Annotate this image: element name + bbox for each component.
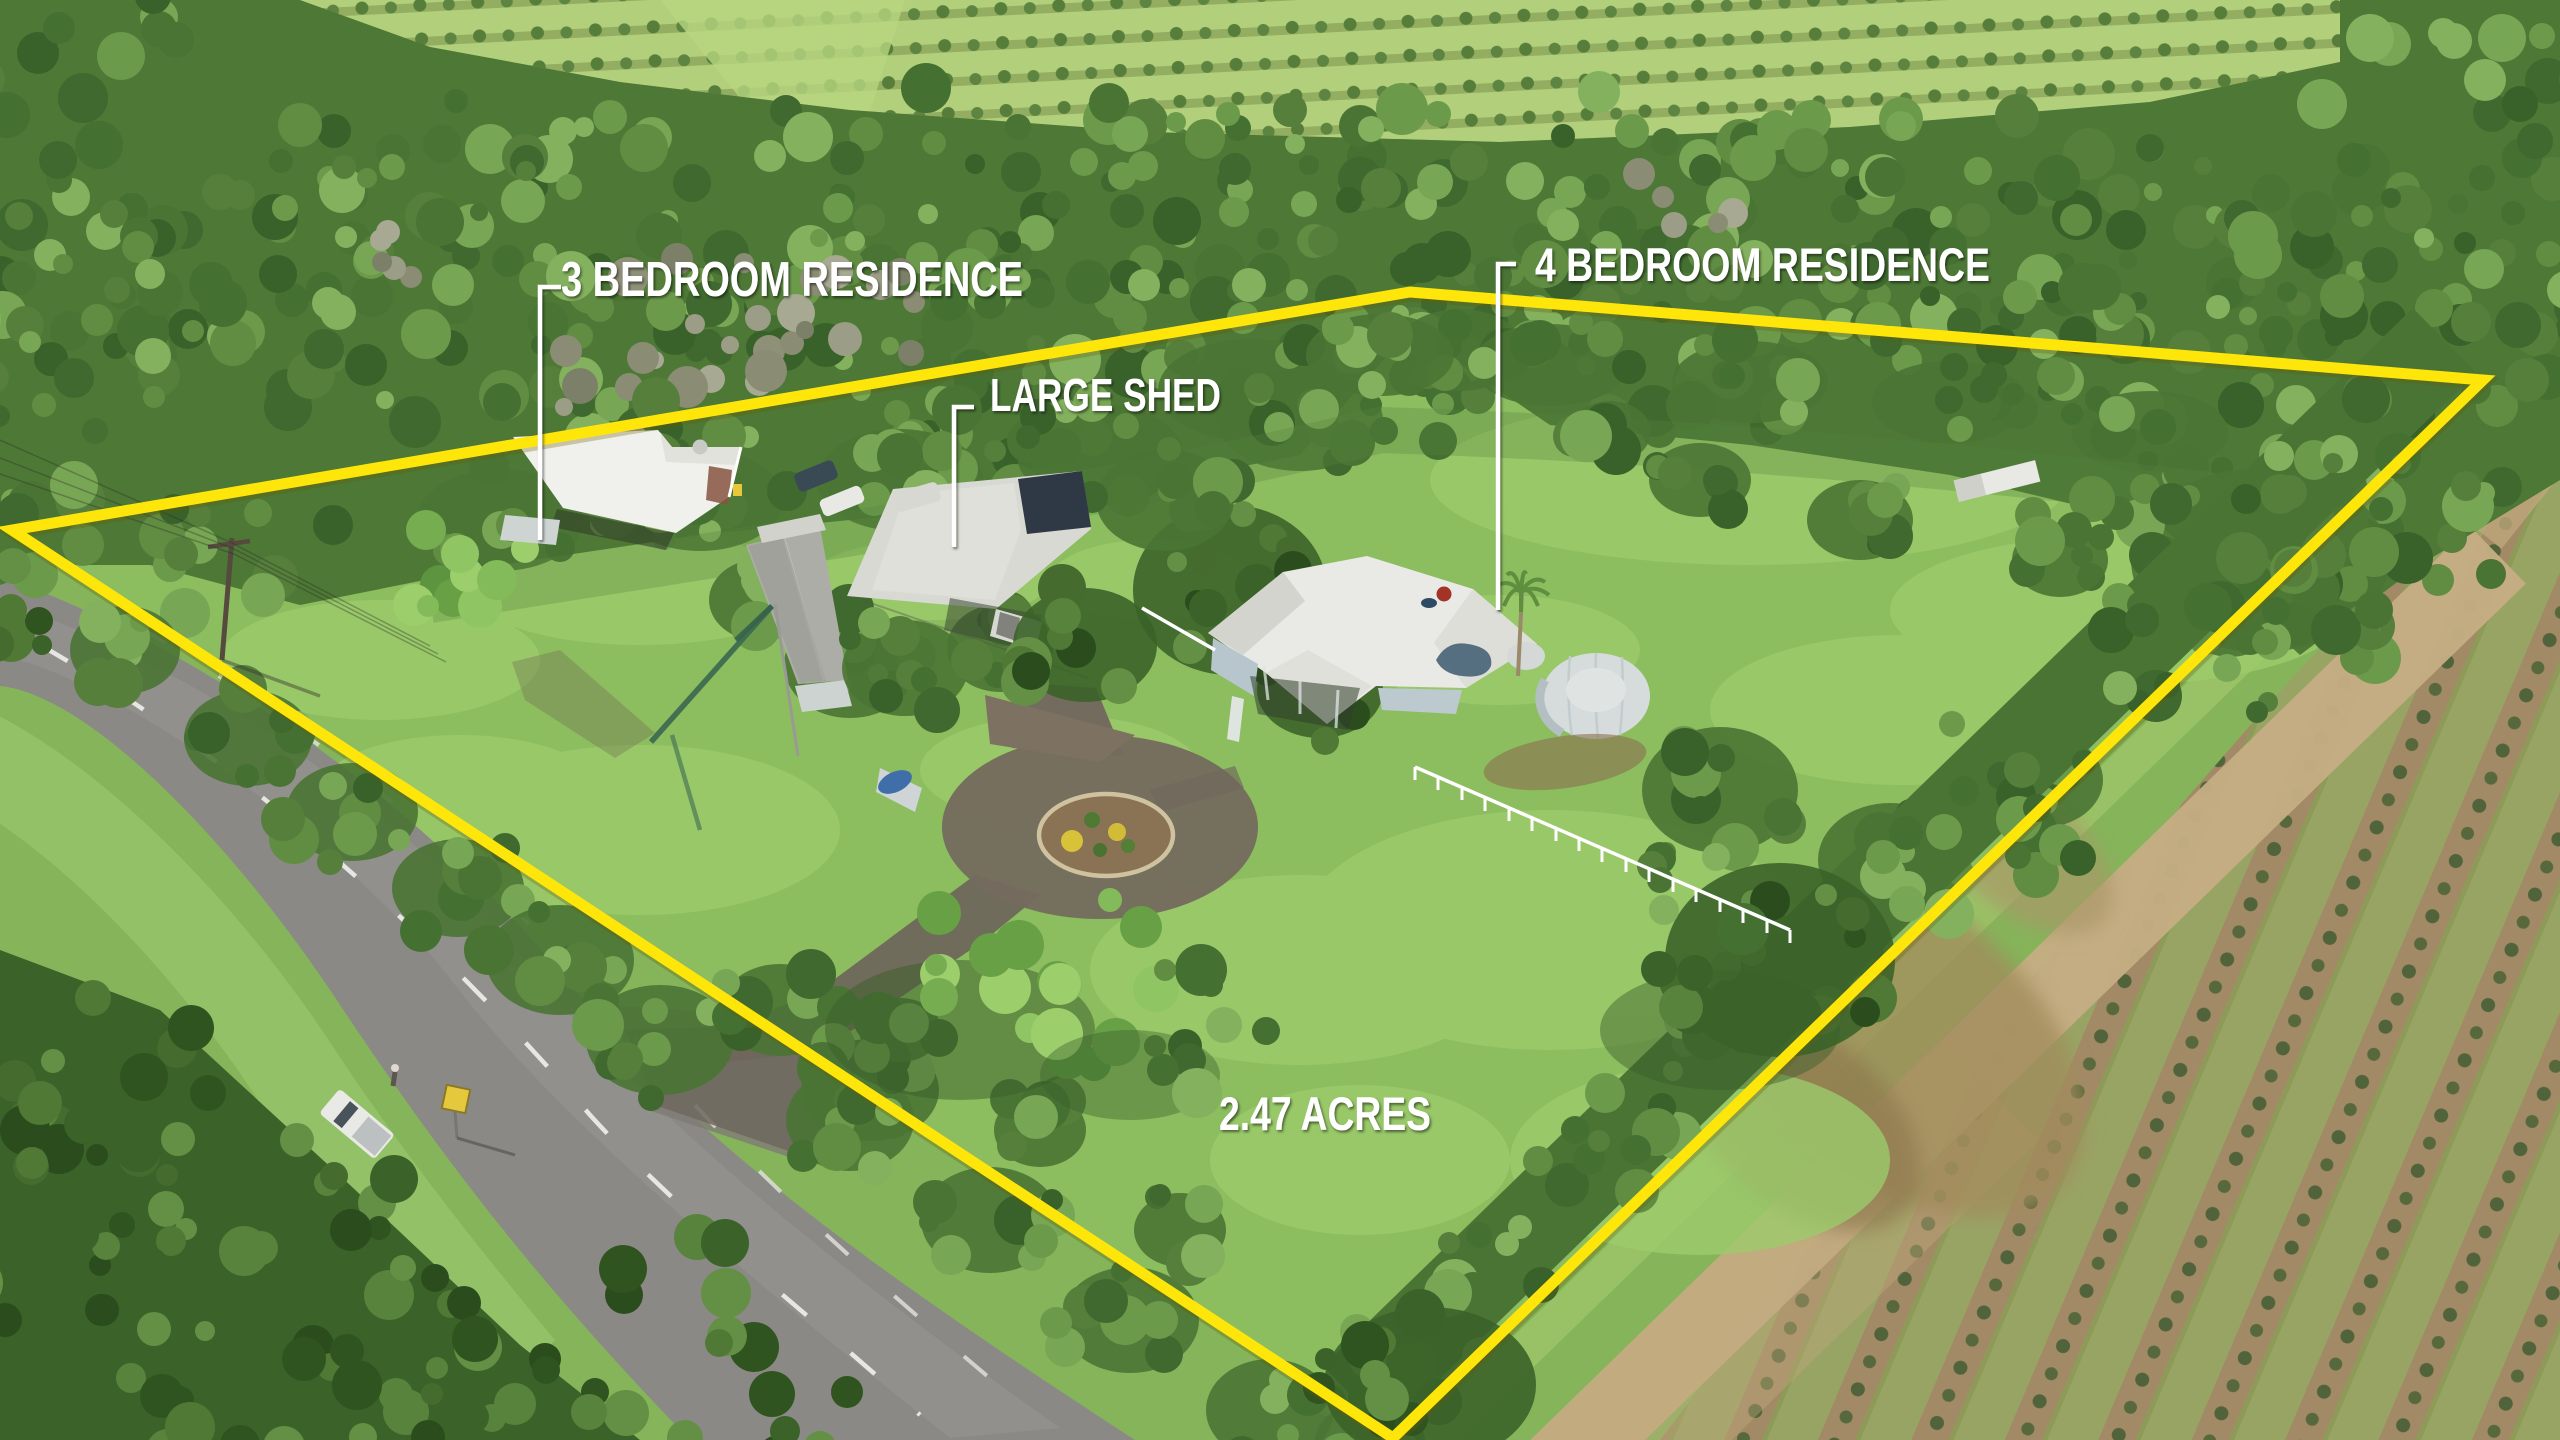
- svg-text:4 BEDROOM RESIDENCE: 4 BEDROOM RESIDENCE: [1535, 238, 1990, 291]
- svg-text:2.47 ACRES: 2.47 ACRES: [1219, 1087, 1431, 1140]
- svg-text:LARGE SHED: LARGE SHED: [990, 369, 1221, 421]
- svg-text:3 BEDROOM RESIDENCE: 3 BEDROOM RESIDENCE: [561, 253, 1023, 307]
